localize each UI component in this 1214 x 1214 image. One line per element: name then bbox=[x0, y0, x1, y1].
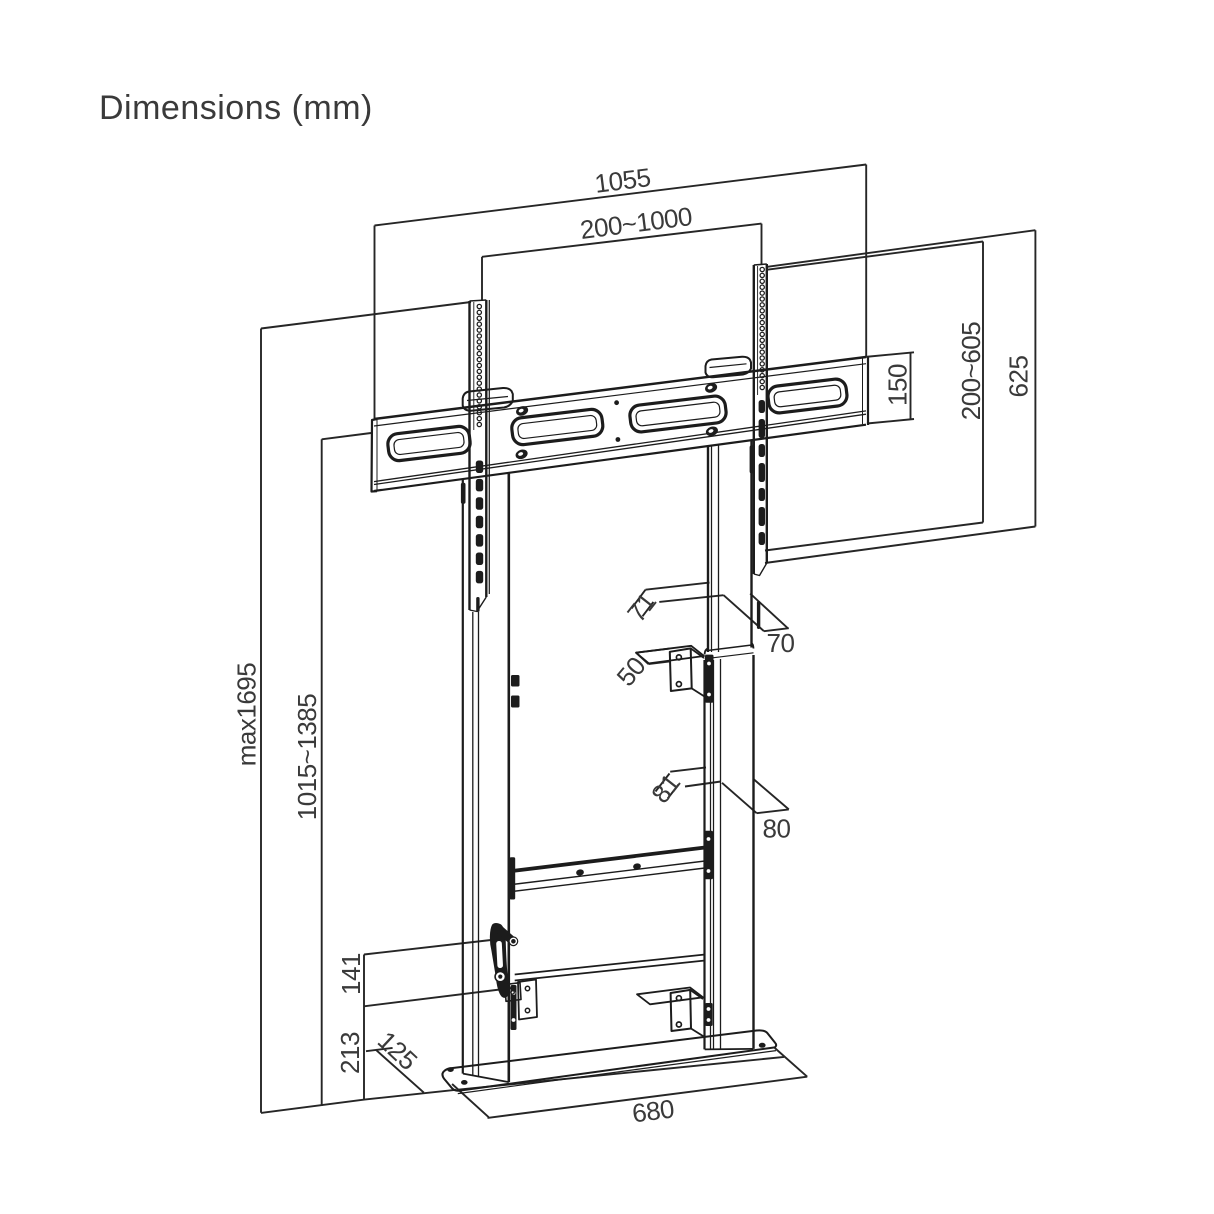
svg-text:1015~1385: 1015~1385 bbox=[292, 694, 322, 820]
svg-text:150: 150 bbox=[883, 364, 913, 406]
svg-text:80: 80 bbox=[763, 814, 791, 844]
svg-text:70: 70 bbox=[767, 628, 795, 658]
svg-text:Dimensions (mm): Dimensions (mm) bbox=[99, 89, 373, 127]
svg-text:200~605: 200~605 bbox=[956, 322, 986, 420]
svg-text:213: 213 bbox=[335, 1032, 365, 1074]
svg-text:max1695: max1695 bbox=[232, 663, 262, 766]
svg-text:625: 625 bbox=[1004, 356, 1034, 398]
svg-text:680: 680 bbox=[630, 1093, 675, 1128]
svg-text:141: 141 bbox=[336, 953, 366, 995]
